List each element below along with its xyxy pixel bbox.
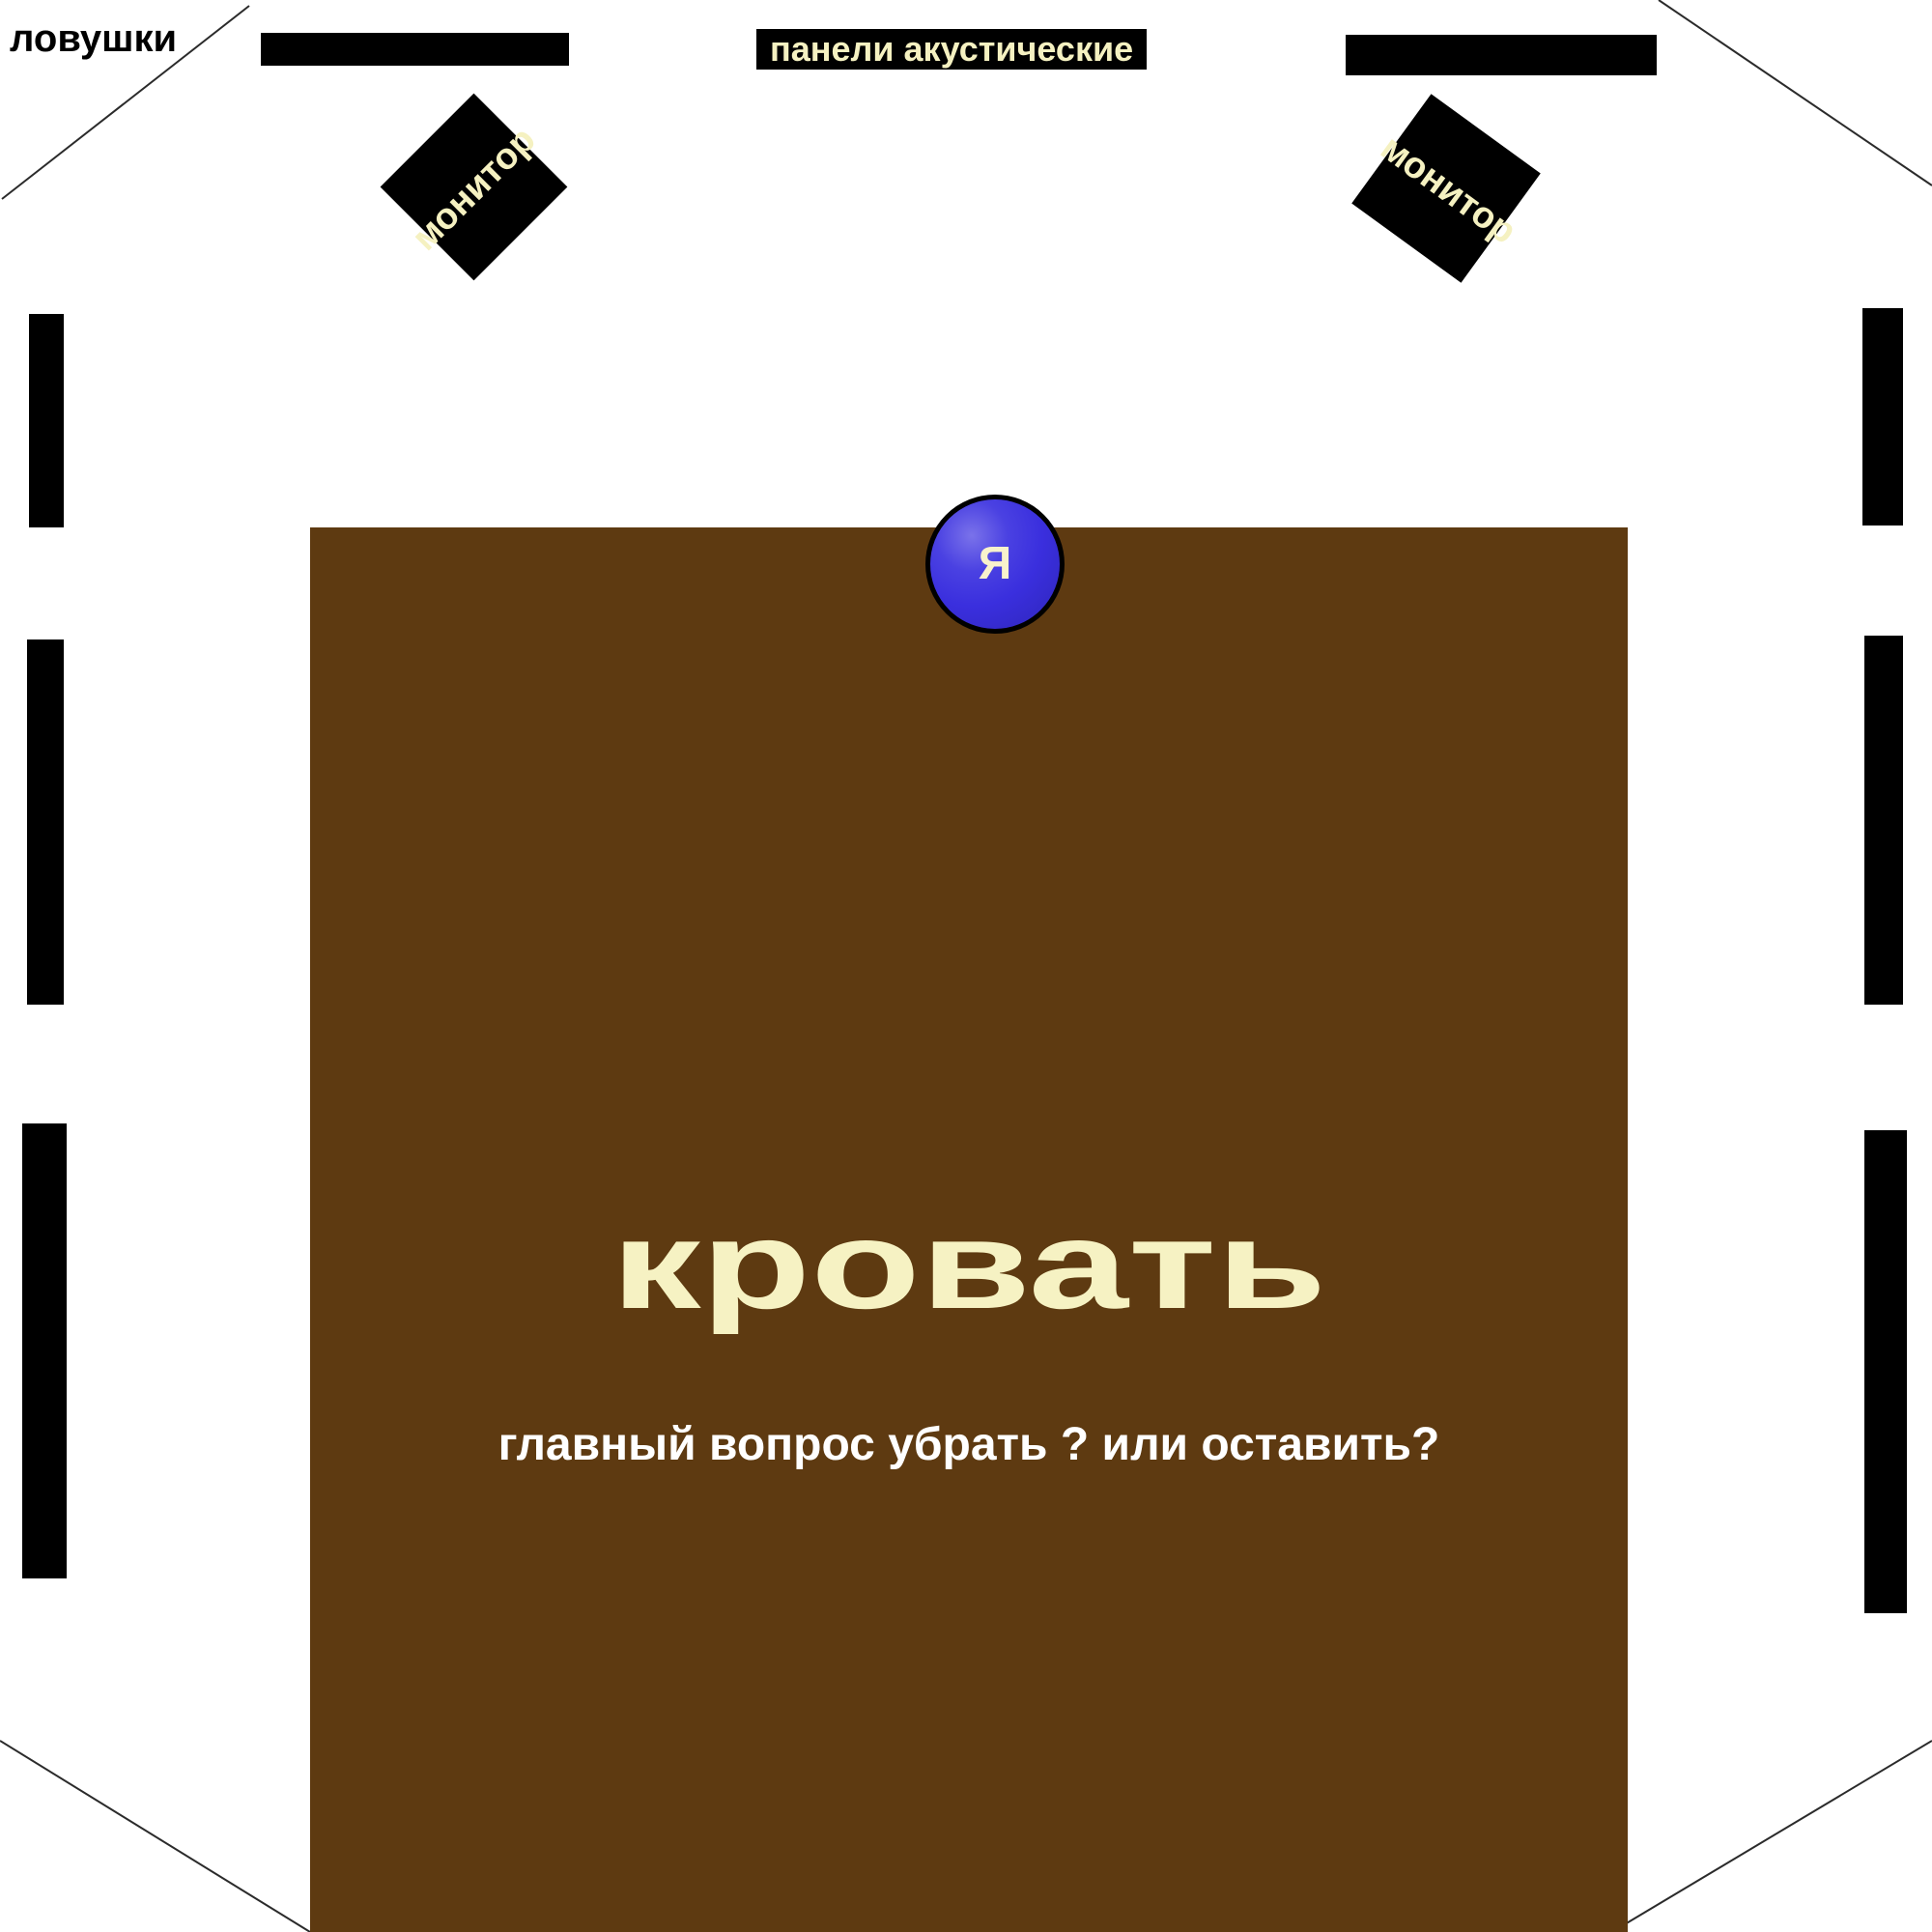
- traps-label: ловушки: [10, 17, 177, 61]
- bass-trap-left-1: [29, 314, 64, 527]
- wall-corner-bottom-left-line: [0, 1741, 310, 1932]
- bass-trap-left-2: [27, 639, 64, 1005]
- listener-label: Я: [979, 541, 1012, 587]
- bed-label: кровать: [611, 1192, 1327, 1337]
- bed-area: кровать главный вопрос убрать ? или оста…: [310, 527, 1628, 1932]
- acoustic-panel-top-right: [1346, 35, 1657, 75]
- bed-label-wrap: кровать: [310, 1192, 1628, 1337]
- bass-trap-right-2: [1864, 636, 1903, 1005]
- acoustic-panels-label: панели акустические: [756, 29, 1147, 70]
- wall-corner-top-right-line: [1659, 0, 1932, 185]
- listener-position-marker: Я: [925, 495, 1065, 634]
- wall-corner-bottom-right-line: [1620, 1741, 1932, 1927]
- bed-question-text: главный вопрос убрать ? или оставить?: [310, 1418, 1628, 1471]
- bass-trap-left-3: [22, 1123, 67, 1578]
- bass-trap-right-3: [1864, 1130, 1907, 1613]
- acoustic-panel-top-left: [261, 33, 569, 66]
- bass-trap-right-1: [1862, 308, 1903, 526]
- room-diagram: ловушки панели акустические монитор мони…: [0, 0, 1932, 1932]
